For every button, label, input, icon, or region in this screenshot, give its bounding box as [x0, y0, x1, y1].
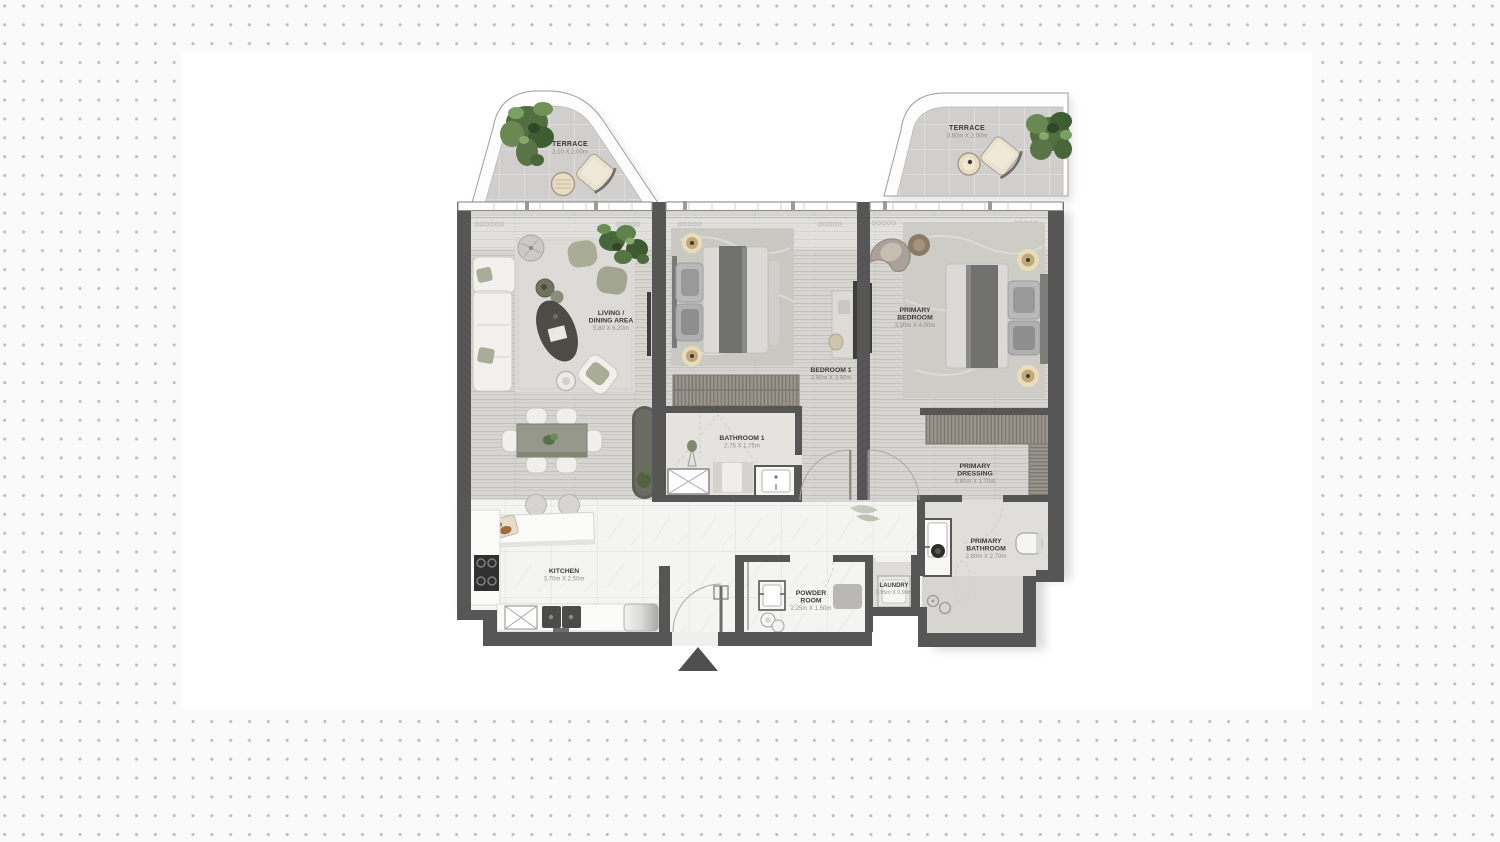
svg-text:2.75 X 1.75m: 2.75 X 1.75m — [724, 444, 760, 450]
svg-text:2.80m X 1.70m: 2.80m X 1.70m — [955, 479, 996, 485]
svg-text:DINING AREA: DINING AREA — [589, 318, 634, 325]
svg-text:3.90m X 3.90m: 3.90m X 3.90m — [811, 376, 852, 382]
svg-text:3.10 X 2.00m: 3.10 X 2.00m — [552, 150, 588, 156]
svg-text:2.60m X 2.70m: 2.60m X 2.70m — [966, 554, 1007, 560]
svg-text:BEDROOM: BEDROOM — [897, 315, 933, 322]
svg-text:LIVING /: LIVING / — [598, 310, 625, 317]
svg-text:TERRACE: TERRACE — [552, 141, 588, 148]
svg-text:5.80 X 6.20m: 5.80 X 6.20m — [593, 326, 629, 332]
svg-text:KITCHEN: KITCHEN — [549, 568, 579, 575]
svg-text:TERRACE: TERRACE — [949, 125, 985, 132]
svg-text:POWDER: POWDER — [796, 590, 827, 597]
svg-text:3.60m X 2.00m: 3.60m X 2.00m — [947, 134, 988, 140]
svg-text:3.90m X 4.00m: 3.90m X 4.00m — [895, 323, 936, 329]
svg-text:0.95m X 0.90m: 0.95m X 0.90m — [876, 590, 913, 596]
svg-text:LAUNDRY: LAUNDRY — [879, 583, 908, 589]
svg-text:PRIMARY: PRIMARY — [899, 307, 931, 314]
svg-text:BATHROOM 1: BATHROOM 1 — [719, 435, 764, 442]
svg-text:BATHROOM: BATHROOM — [966, 546, 1006, 553]
svg-text:DRESSING: DRESSING — [957, 471, 993, 478]
svg-text:PRIMARY: PRIMARY — [959, 463, 991, 470]
svg-text:3.70m X 2.50m: 3.70m X 2.50m — [544, 577, 585, 583]
svg-text:BEDROOM 1: BEDROOM 1 — [810, 367, 851, 374]
svg-text:ROOM: ROOM — [800, 598, 821, 605]
svg-text:2.25m X 1.50m: 2.25m X 1.50m — [791, 606, 832, 612]
svg-text:PRIMARY: PRIMARY — [970, 538, 1002, 545]
